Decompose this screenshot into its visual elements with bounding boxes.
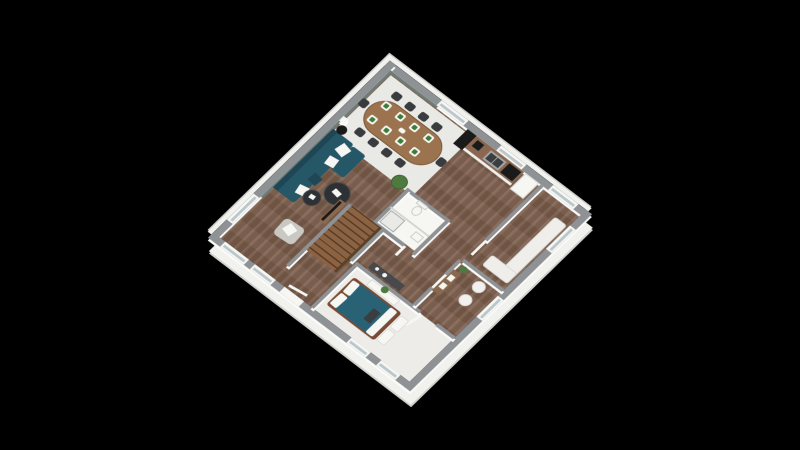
viewer-canvas-background (0, 0, 800, 450)
floorplan-3d-view[interactable] (208, 61, 592, 392)
